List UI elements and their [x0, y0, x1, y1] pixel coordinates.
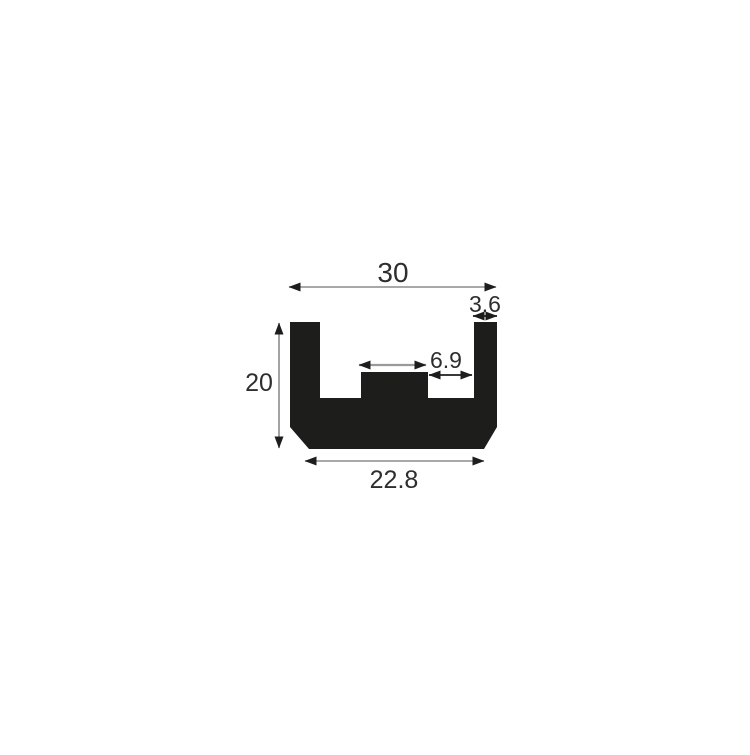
dim-label-gap-width: 6.9 — [430, 347, 462, 373]
dim-label-overall-width: 30 — [377, 257, 408, 288]
profile-diagram-svg: 30 3.6 20 6.9 22.8 — [0, 0, 750, 750]
diagram-canvas: 30 3.6 20 6.9 22.8 — [0, 0, 750, 750]
profile-shape — [290, 322, 497, 449]
dim-label-wall-thickness: 3.6 — [469, 291, 501, 317]
dim-label-overall-height: 20 — [245, 369, 273, 397]
dim-label-base-width: 22.8 — [370, 466, 419, 494]
